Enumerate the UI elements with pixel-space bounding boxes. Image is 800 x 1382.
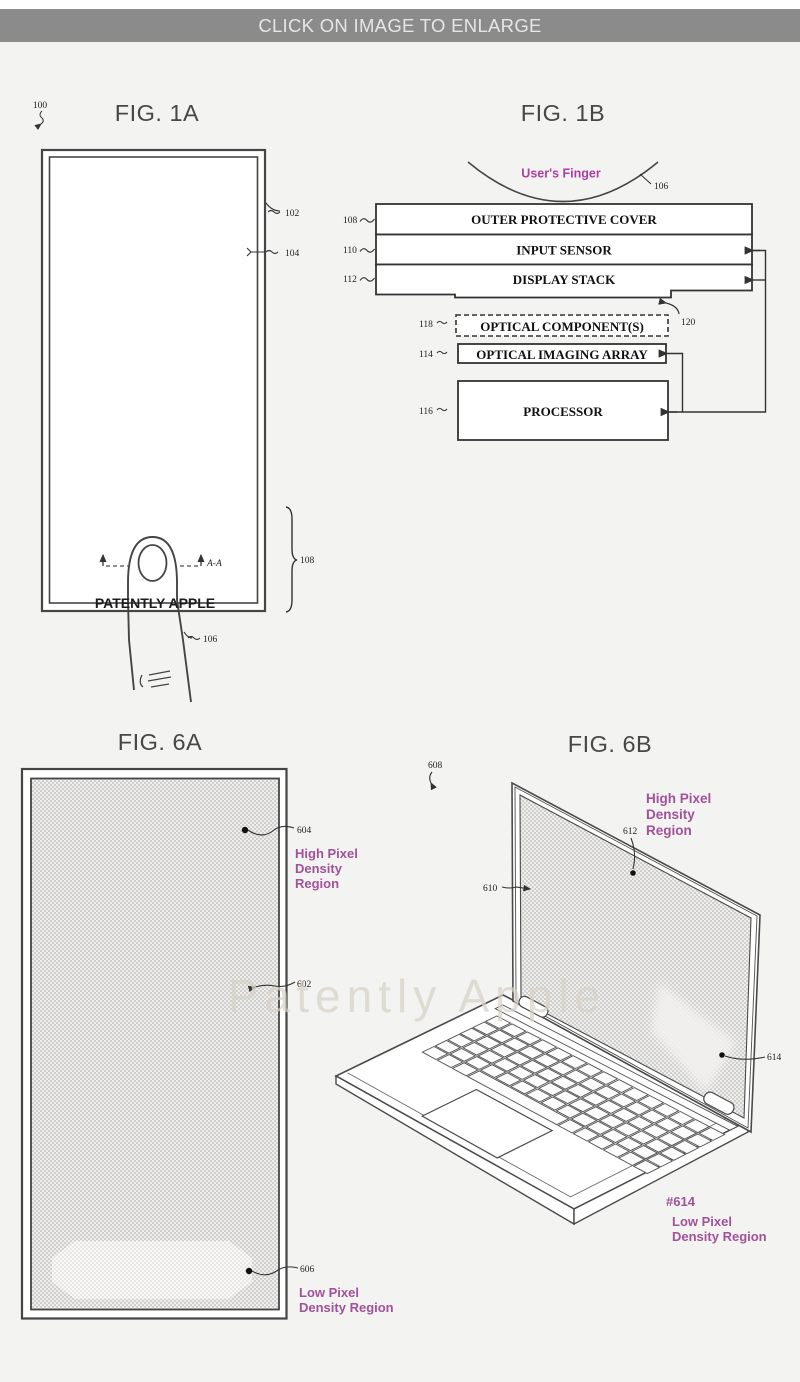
- svg-text:100: 100: [33, 101, 48, 111]
- svg-text:Low Pixel: Low Pixel: [672, 1214, 732, 1229]
- svg-text:FIG. 1A: FIG. 1A: [115, 100, 199, 126]
- svg-text:108: 108: [300, 556, 315, 566]
- svg-text:OPTICAL COMPONENT(S): OPTICAL COMPONENT(S): [480, 319, 644, 334]
- svg-text:108: 108: [343, 216, 358, 226]
- svg-text:Region: Region: [295, 876, 339, 891]
- svg-text:A-A: A-A: [206, 559, 222, 569]
- svg-text:102: 102: [285, 209, 300, 219]
- svg-text:Density: Density: [646, 807, 695, 822]
- svg-text:Density: Density: [295, 861, 343, 876]
- svg-text:118: 118: [419, 320, 433, 330]
- svg-text:FIG. 6A: FIG. 6A: [118, 729, 202, 755]
- svg-text:612: 612: [623, 827, 638, 837]
- svg-text:614: 614: [767, 1053, 782, 1063]
- svg-text:Density Region: Density Region: [672, 1229, 767, 1244]
- svg-text:High Pixel: High Pixel: [295, 846, 358, 861]
- svg-text:Region: Region: [646, 823, 692, 838]
- svg-text:606: 606: [300, 1265, 315, 1275]
- svg-text:Patently Apple: Patently Apple: [228, 970, 606, 1022]
- svg-text:114: 114: [419, 350, 433, 360]
- svg-text:CLICK ON IMAGE TO ENLARGE: CLICK ON IMAGE TO ENLARGE: [258, 15, 541, 36]
- svg-text:604: 604: [297, 826, 312, 836]
- svg-text:FIG. 6B: FIG. 6B: [568, 731, 652, 757]
- svg-text:PROCESSOR: PROCESSOR: [523, 404, 603, 419]
- svg-text:106: 106: [203, 635, 218, 645]
- svg-text:116: 116: [419, 407, 433, 417]
- svg-text:106: 106: [654, 182, 669, 192]
- svg-text:PATENTLY APPLE: PATENTLY APPLE: [95, 595, 215, 611]
- svg-text:104: 104: [285, 249, 300, 259]
- svg-text:112: 112: [343, 275, 357, 285]
- svg-text:OPTICAL IMAGING ARRAY: OPTICAL IMAGING ARRAY: [476, 347, 648, 362]
- svg-text:FIG. 1B: FIG. 1B: [521, 100, 605, 126]
- svg-text:User's Finger: User's Finger: [521, 167, 601, 181]
- svg-text:110: 110: [343, 246, 357, 256]
- svg-text:#614: #614: [666, 1194, 696, 1209]
- svg-text:608: 608: [428, 761, 443, 771]
- svg-text:OUTER PROTECTIVE COVER: OUTER PROTECTIVE COVER: [471, 212, 657, 227]
- svg-text:DISPLAY STACK: DISPLAY STACK: [513, 272, 616, 287]
- svg-text:610: 610: [483, 884, 498, 894]
- svg-text:INPUT SENSOR: INPUT SENSOR: [516, 243, 612, 258]
- svg-text:120: 120: [681, 318, 696, 328]
- svg-text:High Pixel: High Pixel: [646, 791, 711, 806]
- svg-text:Low Pixel: Low Pixel: [299, 1285, 359, 1300]
- svg-text:Density Region: Density Region: [299, 1300, 394, 1315]
